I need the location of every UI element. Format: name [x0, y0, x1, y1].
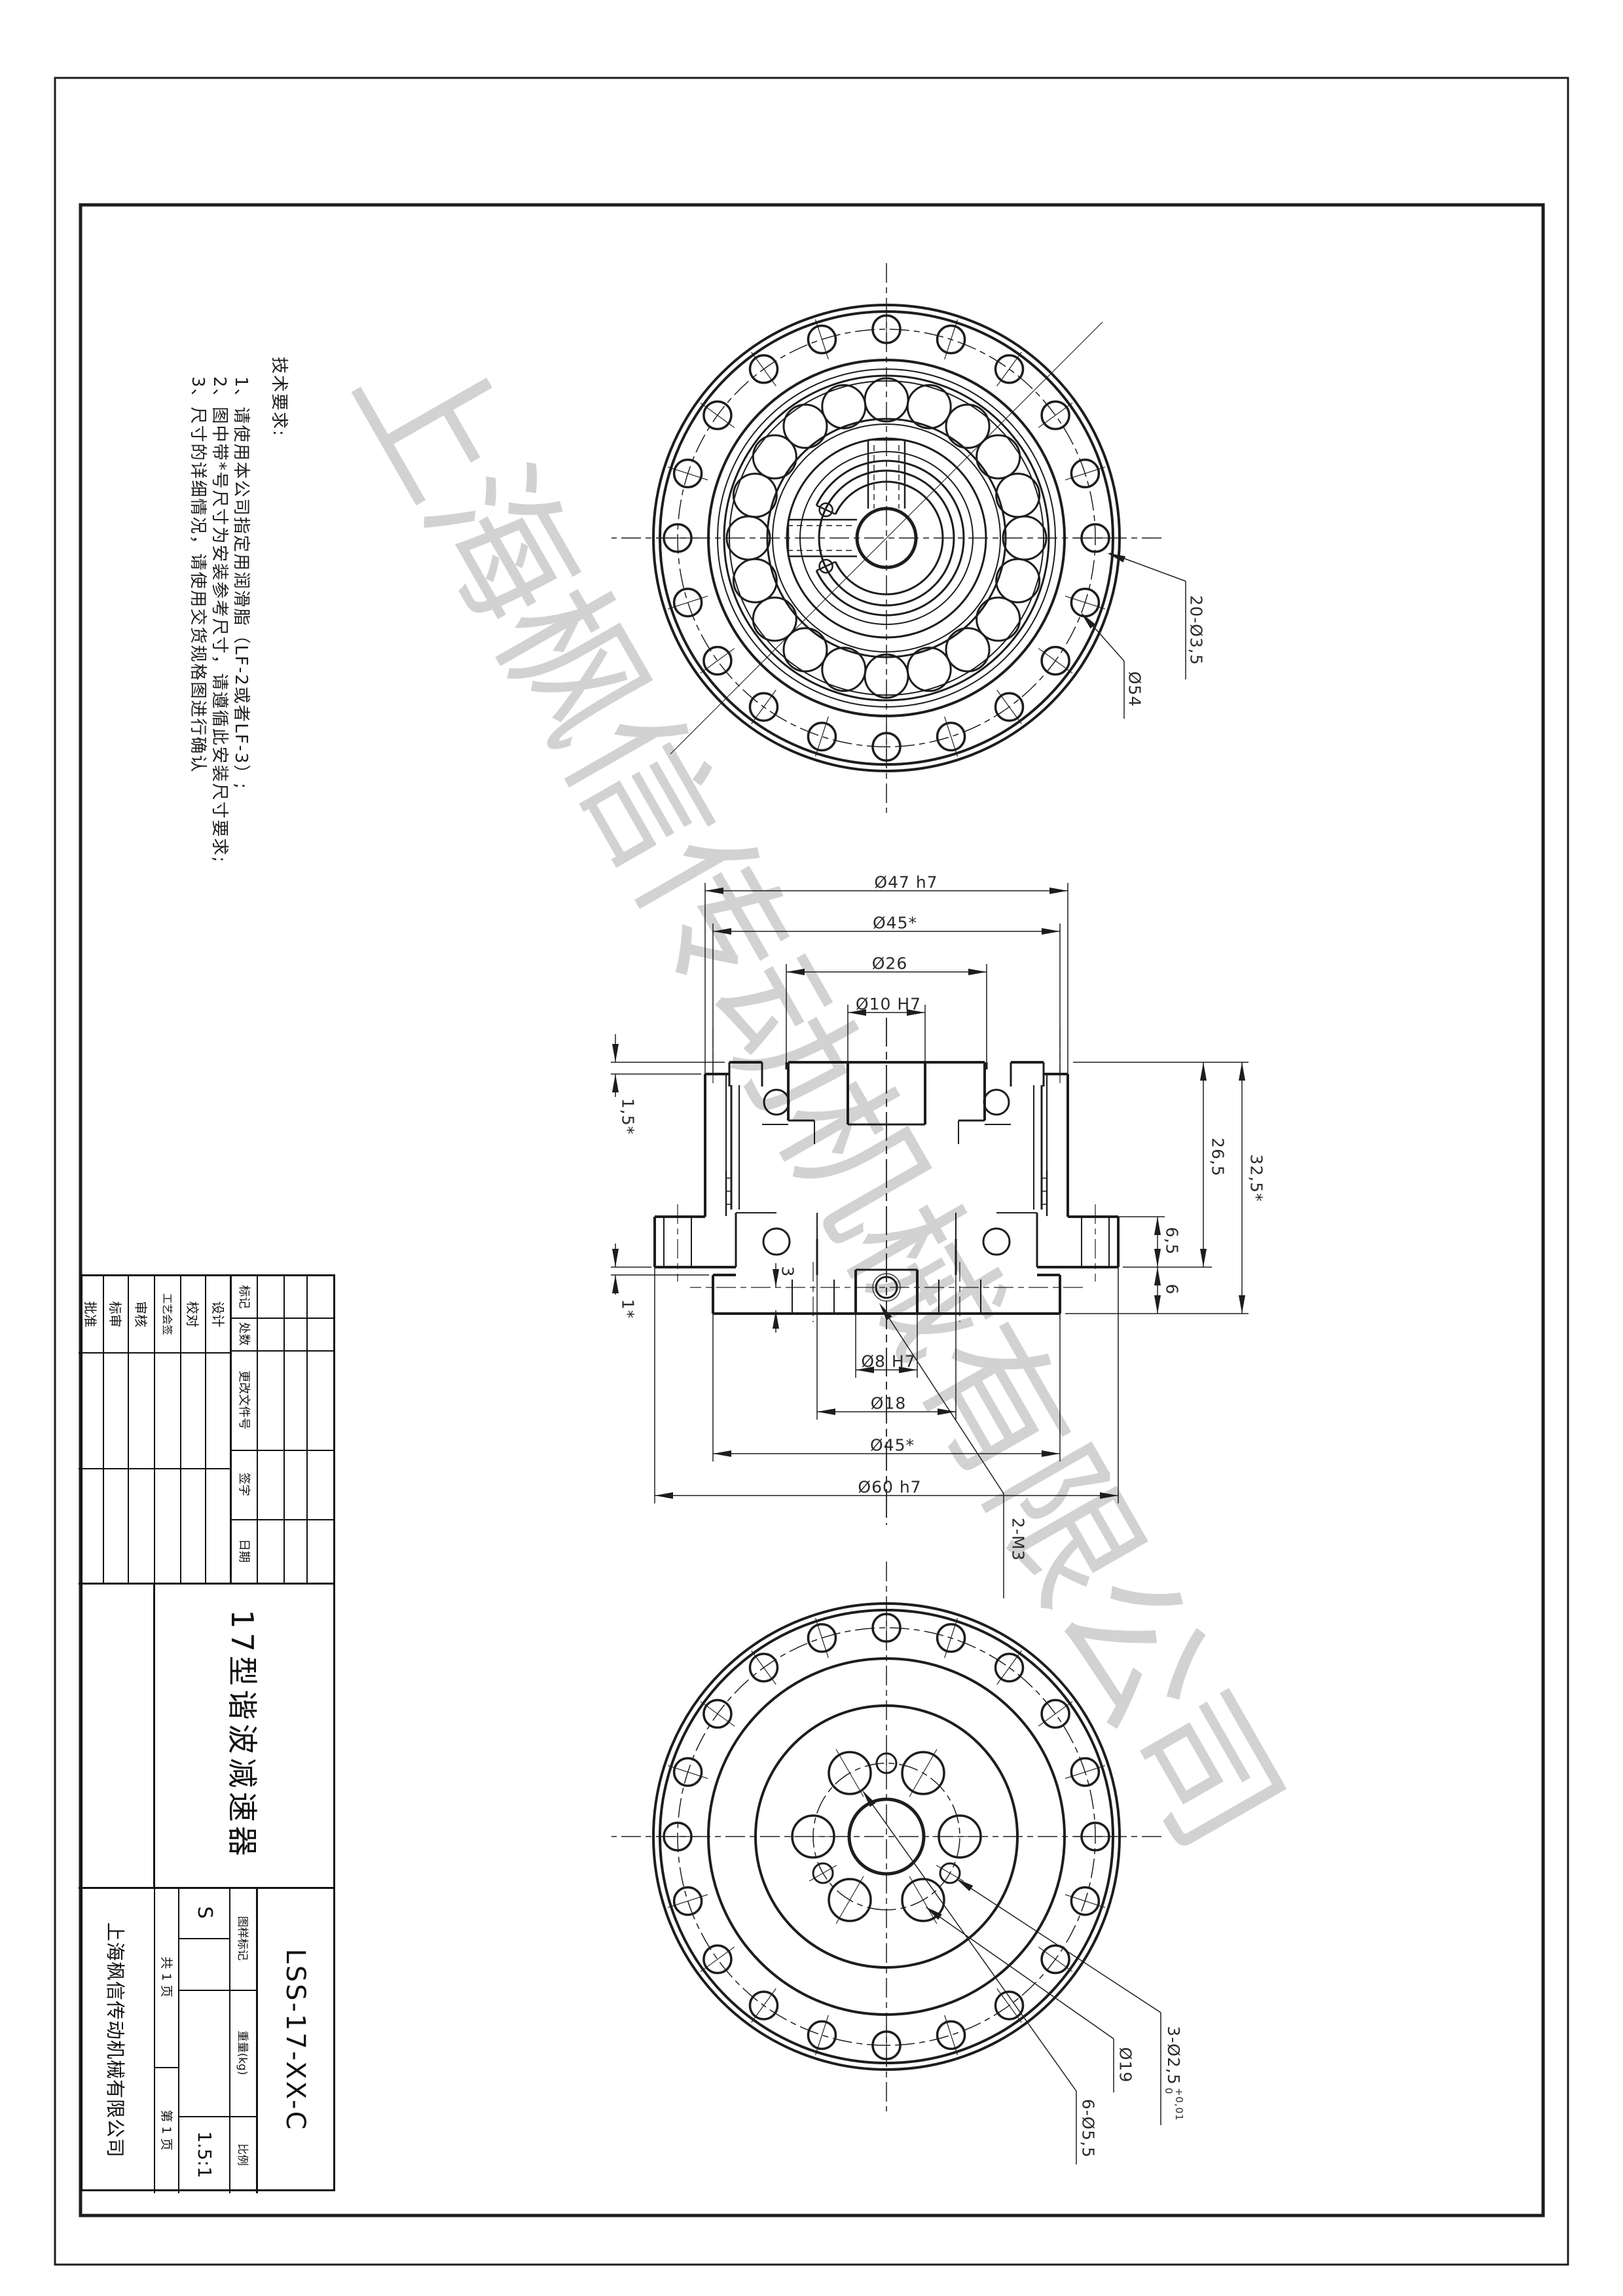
rev-header-sign: 签字 [232, 1450, 258, 1519]
dim-label-6: 6 [1163, 1284, 1182, 1295]
company-name: 上海枫信传动机械有限公司 [79, 1887, 155, 2193]
dim-label-3: 3 [778, 1266, 797, 1278]
tech-note-1: 1、请使用本公司指定用润滑脂（LF-2或者LF-3）; [230, 376, 255, 790]
dim-label-2-m3: 2-M3 [1009, 1518, 1028, 1561]
dim-label-bc54: Ø54 [1125, 672, 1144, 708]
dim-label-6-holes: 6-Ø5,5 [1079, 2099, 1098, 2158]
tech-note-3: 3、尺寸的详细情况，请使用交货规格图进行确认 [187, 376, 211, 774]
drawing-sheet: 上海枫信传动机械有限公司 技术要求: 1、请使用本公司指定用润滑脂（LF-2或者… [0, 0, 1623, 2296]
tech-note-2: 2、图中带*号尺寸为安装参考尺寸，请遵循此安装尺寸要求; [209, 376, 233, 863]
dim-label-20-holes: 20-Ø3,5 [1187, 595, 1206, 665]
dim-label-bc19: Ø19 [1116, 2047, 1135, 2083]
landscape-drawing: 上海枫信传动机械有限公司 技术要求: 1、请使用本公司指定用润滑脂（LF-2或者… [0, 0, 1623, 2296]
tech-notes-title: 技术要求: [268, 357, 293, 437]
sign-row-audit: 审核 [129, 1276, 155, 1352]
sign-row-design: 设计 [206, 1276, 232, 1352]
stage-header: 图样标记 [230, 1887, 258, 1990]
rev-header-date: 日期 [232, 1519, 258, 1583]
sheet-total: 共 1 页 [155, 1887, 179, 2067]
dim-label-1: 1* [619, 1299, 638, 1319]
dim-label-d60: Ø60 h7 [858, 1478, 921, 1497]
dim-label-d45-left: Ø45* [873, 914, 917, 933]
dim-label-3-pins: 3-Ø2,5+0,010 [1163, 2026, 1184, 2121]
dim-label-d47: Ø47 h7 [874, 873, 938, 892]
dim-label-d26: Ø26 [872, 954, 908, 973]
dim-label-d45-right: Ø45* [870, 1436, 915, 1455]
dim-label-26-5: 26,5 [1209, 1138, 1228, 1177]
sign-row-standard: 标审 [104, 1276, 129, 1352]
scale-value: 1.5:1 [179, 2116, 230, 2193]
dim-label-1-5: 1,5* [619, 1098, 638, 1135]
sign-row-check: 校对 [181, 1276, 206, 1352]
weight-header: 重量(kg) [230, 1990, 258, 2116]
sheet-number: 第 1 页 [155, 2067, 179, 2193]
rev-header-docno: 更改文件号 [232, 1350, 258, 1450]
rev-header-count: 处数 [232, 1318, 258, 1350]
sign-row-approve: 批准 [79, 1276, 104, 1352]
stage-value: S [179, 1887, 230, 1938]
dim-label-6-5: 6,5 [1163, 1227, 1182, 1255]
dim-label-d8: Ø8 H7 [861, 1352, 915, 1371]
dim-label-d18: Ø18 [871, 1394, 907, 1413]
sign-row-process: 工艺会签 [155, 1276, 181, 1352]
part-name: 17型谐波减速器 [155, 1583, 333, 1887]
dim-label-32-5: 32,5* [1247, 1154, 1266, 1202]
rev-header-mark: 标记 [232, 1276, 258, 1318]
dim-label-d10: Ø10 H7 [856, 995, 921, 1014]
scale-header: 比例 [230, 2116, 258, 2193]
title-block: 标记 处数 更改文件号 签字 日期 设计 校对 工艺会签 审核 标审 批准 17… [81, 1274, 335, 2191]
drawing-number: LSS-17-XX-C [258, 1887, 333, 2193]
